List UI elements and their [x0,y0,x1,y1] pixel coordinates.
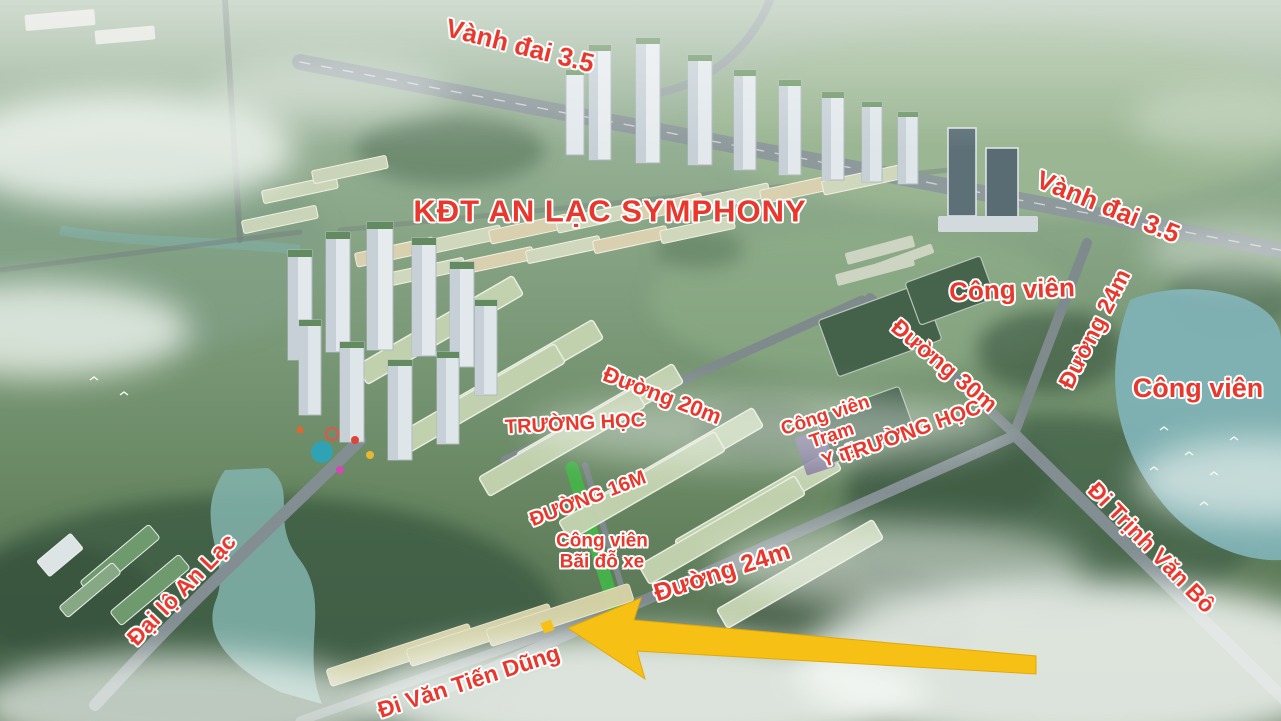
label-park-parking-line2: Bãi đỗ xe [556,552,648,573]
label-park-parking-line1: Công viên [556,531,648,552]
label-park-upper-right: Công viên [949,273,1076,306]
label-park-parking: Công viên Bãi đỗ xe [556,531,648,574]
masterplan-aerial-view: Vành đai 3.5 KĐT AN LẠC SYMPHONY Vành đa… [0,0,1281,721]
label-park-far-right: Công viên [1133,373,1264,403]
label-project-title: KĐT AN LẠC SYMPHONY [413,195,806,230]
